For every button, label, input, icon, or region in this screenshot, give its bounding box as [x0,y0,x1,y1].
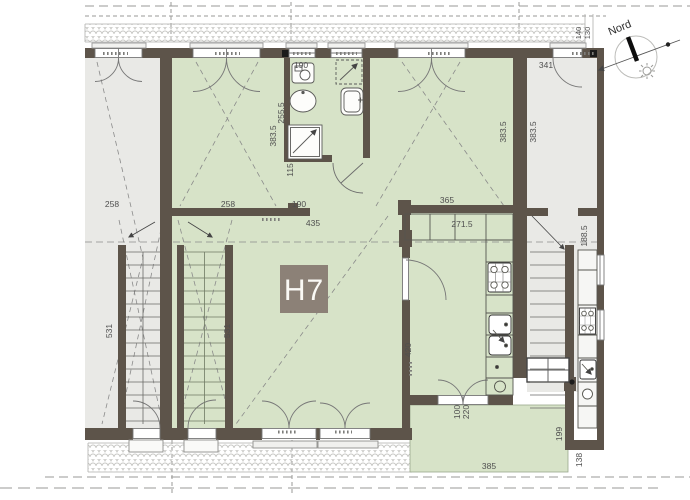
sink-icon [580,360,596,379]
kitchen-right-neighbor [578,250,597,428]
unit-badge: H7 [280,265,328,313]
window-sills [92,43,586,48]
north-compass: Nord [599,18,680,79]
dim-roof-edge-a: 140 [574,27,583,40]
compass-label: Nord [607,18,634,38]
dim-bath-bottom: 115 [285,163,295,177]
party-wall-right [513,48,527,378]
dim-neighbor-room-depth: 383.5 [528,121,538,143]
dim-hall-width: 435 [306,218,320,228]
dim-hall-pier: 190 [292,199,306,209]
oven-icon [583,389,593,399]
dim-kitchen-wall: 365 [440,195,454,205]
stove-icon [488,263,511,292]
dim-bed-right-depth: 383.5 [498,121,508,143]
dim-living-depth: 420 [403,343,413,357]
floor-plan-drawing: H7 Nord 140 130 341 383.5 190 255.5 383.… [0,0,690,500]
window-grid [527,358,569,382]
dim-hall-top: 258 [221,199,235,209]
dim-neighbor-room-width: 341 [539,60,553,70]
dim-neighbor-left-hall: 258 [105,199,119,209]
dim-kitchen-counter: 271.5 [451,219,473,229]
washbasin-icon [290,90,316,112]
dim-neighbor-stair: 188.5 [579,225,589,247]
dim-terrace-width: 385 [482,461,496,471]
dim-bath-width: 190 [294,60,308,70]
dim-roof-edge-b: 130 [583,27,592,40]
dim-bath-side-a: 255.5 [276,102,286,124]
floor-plan: H7 Nord 140 130 341 383.5 190 255.5 383.… [0,0,690,500]
dim-bath-side-b: 383.5 [268,125,278,147]
dim-door-height: 220 [461,405,471,419]
shower-icon [288,125,322,159]
dim-terrace-depth: 199 [554,427,564,441]
dim-stair-left: 531 [104,324,114,338]
party-wall-left [160,48,172,440]
unit-label: H7 [284,274,324,307]
dim-stair-right: 531 [222,324,232,338]
dim-neighbor-terrace: 138 [574,453,584,467]
sun-icon [639,63,655,79]
stove-icon [580,308,596,334]
washbasin-right-icon [341,88,363,115]
